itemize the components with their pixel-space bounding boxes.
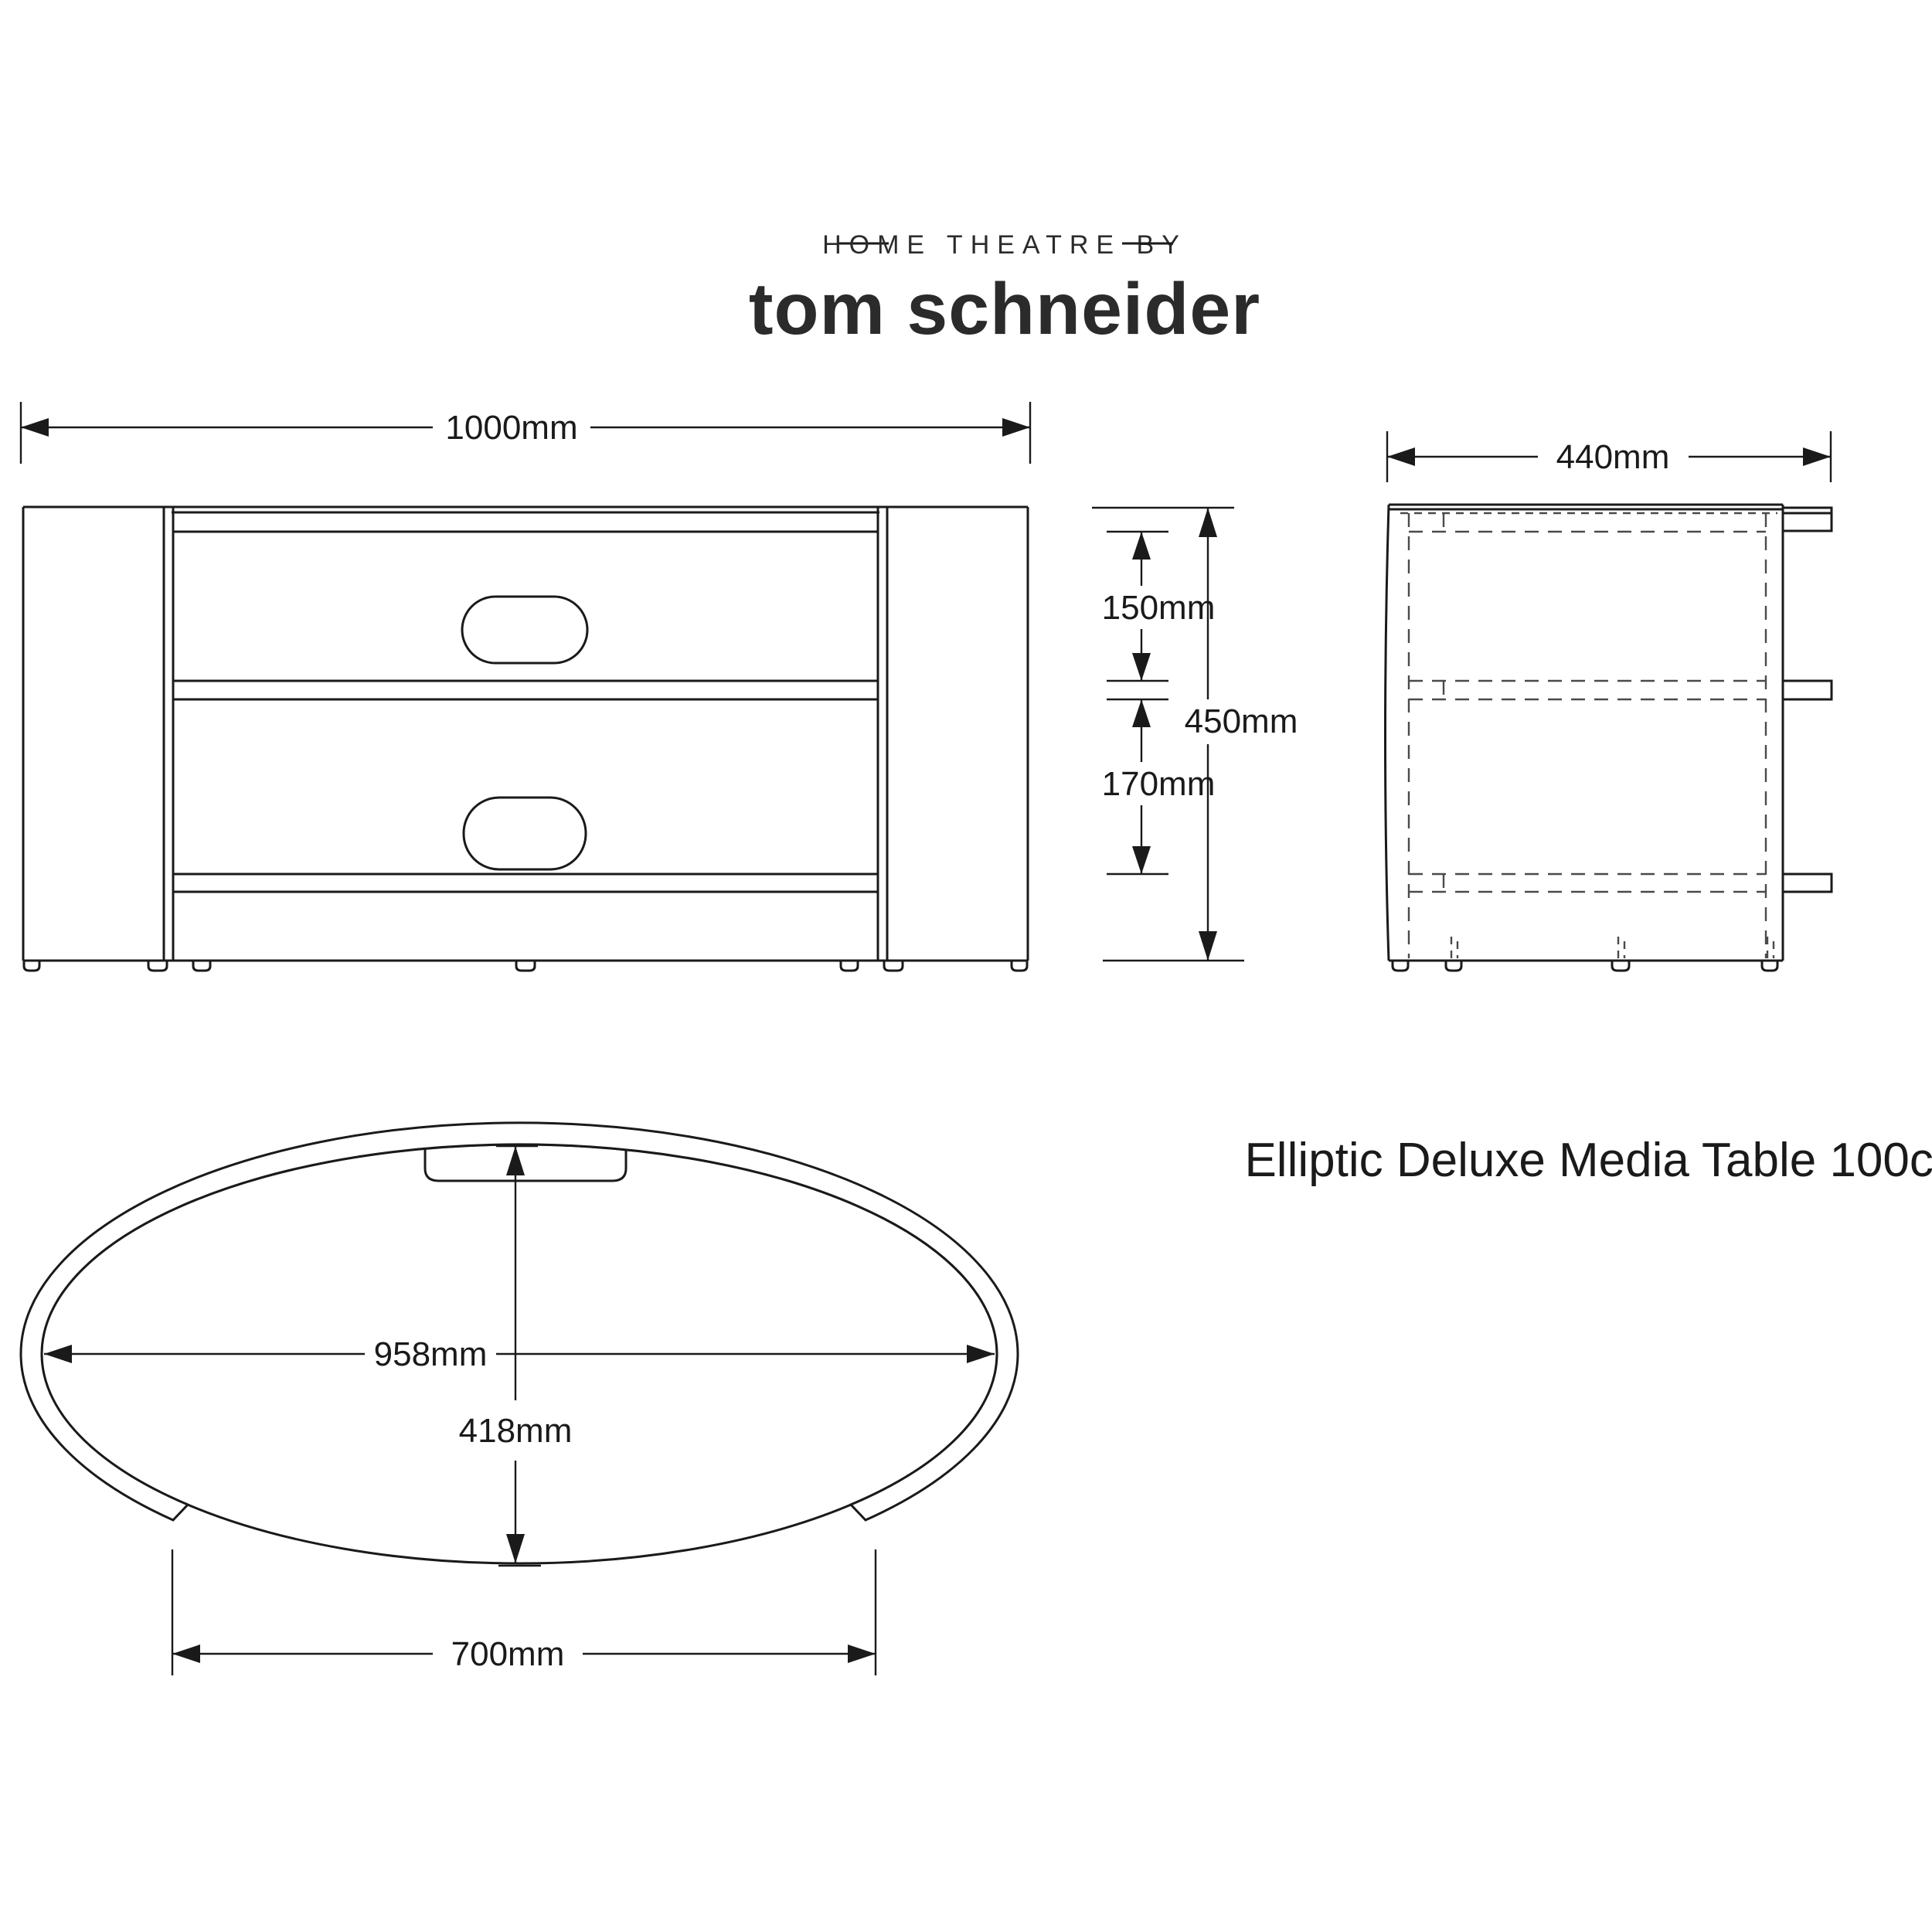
top-inner-width-label: 958mm <box>374 1335 488 1373</box>
front-feet <box>24 961 1027 971</box>
logo-name: tom schneider <box>749 268 1260 350</box>
side-cabinet-outline <box>1386 505 1832 971</box>
top-panel-tab <box>1783 508 1832 531</box>
side-hidden-lines <box>1400 513 1777 958</box>
side-depth-label: 440mm <box>1556 438 1670 476</box>
technical-drawing: HOME THEATRE BY tom schneider 1000mm <box>0 0 1932 1932</box>
curved-side-edge <box>1386 505 1389 961</box>
top-base-width-dimension: 700mm <box>172 1549 876 1675</box>
front-height-label: 450mm <box>1185 702 1298 740</box>
gap150-label: 150mm <box>1102 589 1216 627</box>
top-view: 958mm 418mm 700mm <box>21 1123 1018 1675</box>
brand-logo: HOME THEATRE BY tom schneider <box>749 230 1260 350</box>
cable-hole-upper <box>462 597 587 663</box>
product-title: Elliptic Deluxe Media Table 100cm <box>1244 1134 1932 1187</box>
top-inner-depth-label: 418mm <box>459 1412 573 1450</box>
front-gap150-dimension: 150mm <box>1102 532 1216 681</box>
side-view: 440mm <box>1386 431 1832 971</box>
side-feet <box>1393 961 1777 971</box>
logo-tagline: HOME THEATRE BY <box>822 230 1187 260</box>
front-view: 1000mm <box>21 402 1298 971</box>
shelf-2-tab <box>1783 874 1832 892</box>
cable-hole-lower <box>464 798 586 869</box>
top-base-width-label: 700mm <box>451 1635 565 1673</box>
front-cabinet-outline <box>23 507 1028 971</box>
front-width-label: 1000mm <box>445 409 577 447</box>
front-width-dimension: 1000mm <box>21 402 1030 464</box>
shelf-1-tab <box>1783 681 1832 699</box>
side-depth-dimension: 440mm <box>1387 431 1831 482</box>
gap170-label: 170mm <box>1102 765 1216 803</box>
front-height-dimension: 450mm <box>1092 508 1298 961</box>
